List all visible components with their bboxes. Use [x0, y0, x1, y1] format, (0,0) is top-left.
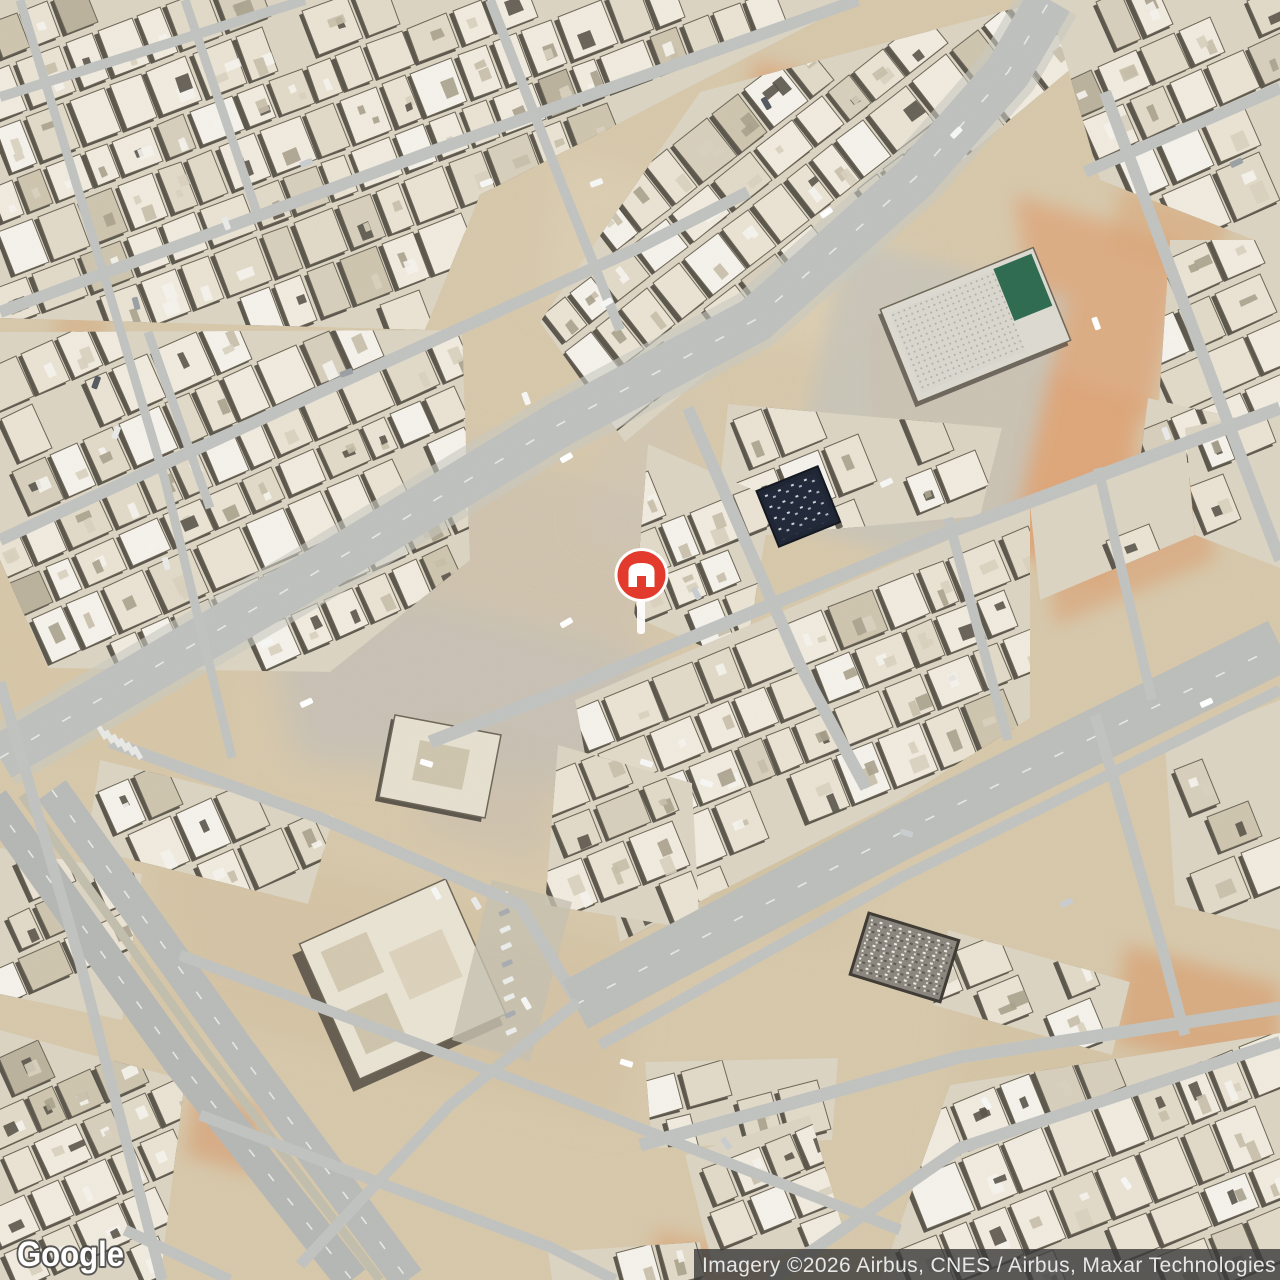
- svg-text:Imagery ©2026 Airbus, CNES / A: Imagery ©2026 Airbus, CNES / Airbus, Max…: [702, 1254, 1276, 1277]
- svg-text:Google: Google: [17, 1235, 124, 1274]
